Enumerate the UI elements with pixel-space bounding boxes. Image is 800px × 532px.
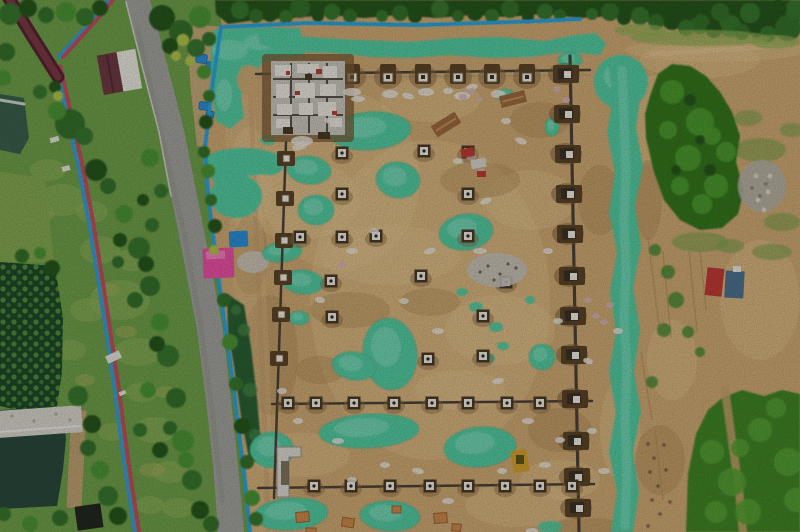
aerial-photo-svg: [0, 0, 800, 532]
grain-overlay: [0, 0, 800, 532]
photo-effects: [0, 0, 800, 532]
aerial-photo: [0, 0, 800, 532]
